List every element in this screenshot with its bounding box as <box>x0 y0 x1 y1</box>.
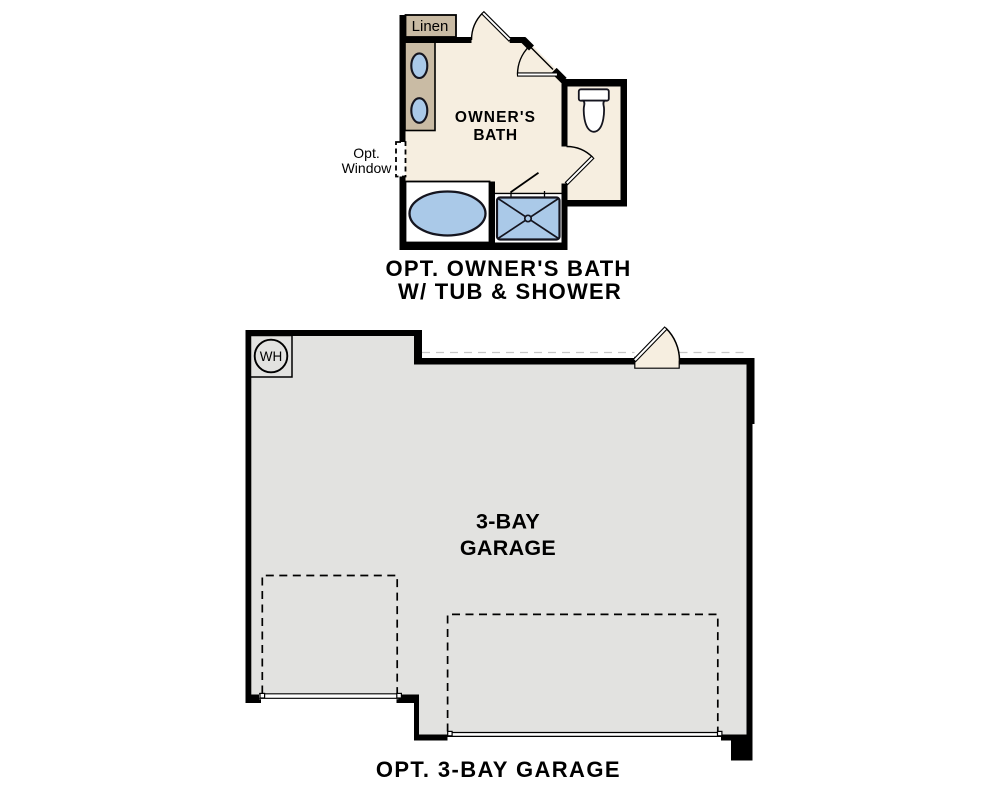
svg-text:Linen: Linen <box>412 18 449 35</box>
svg-text:GARAGE: GARAGE <box>460 536 556 560</box>
svg-text:OPT. OWNER'S BATH: OPT. OWNER'S BATH <box>385 256 631 281</box>
svg-text:WH: WH <box>260 349 283 364</box>
svg-text:BATH: BATH <box>473 127 517 144</box>
svg-text:3-BAY: 3-BAY <box>476 510 540 534</box>
svg-text:W/ TUB & SHOWER: W/ TUB & SHOWER <box>398 279 622 304</box>
svg-text:Window: Window <box>342 160 393 176</box>
svg-text:OWNER'S: OWNER'S <box>455 109 536 126</box>
svg-text:OPT. 3-BAY GARAGE: OPT. 3-BAY GARAGE <box>376 757 621 782</box>
svg-text:Opt.: Opt. <box>353 145 379 161</box>
